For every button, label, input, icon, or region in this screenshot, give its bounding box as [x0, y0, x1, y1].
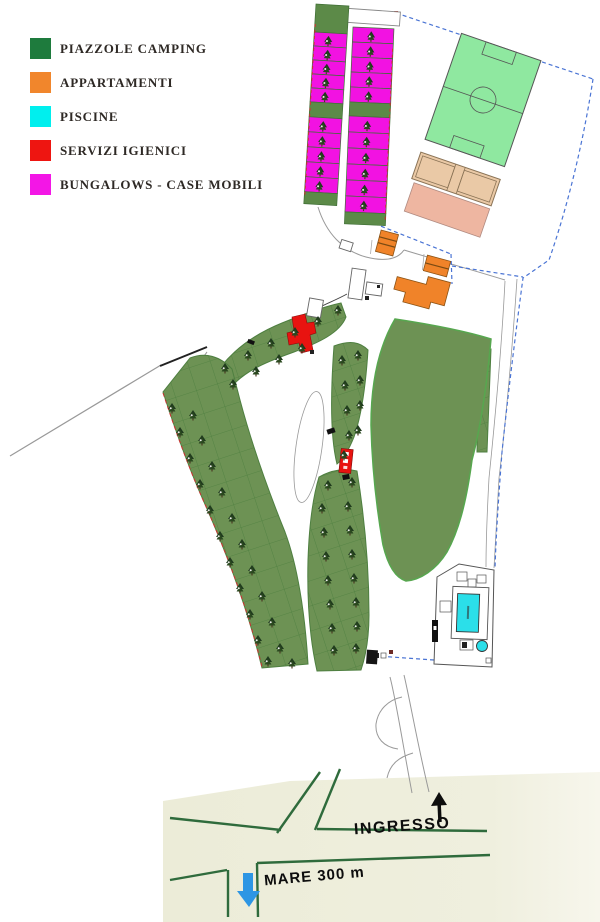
green-strip [349, 102, 391, 118]
legend-label: PISCINE [60, 109, 118, 125]
legend-item-servizi: SERVIZI IGIENICI [30, 140, 263, 161]
legend-item-bungalows: BUNGALOWS - CASE MOBILI [30, 174, 263, 195]
green-strip [309, 102, 343, 119]
green-strip [314, 4, 349, 34]
legend-label: SERVIZI IGIENICI [60, 143, 187, 159]
legend: PIAZZOLE CAMPING APPARTAMENTI PISCINE SE… [30, 38, 263, 195]
main-green-field [371, 319, 491, 581]
bungalow-strips [304, 4, 394, 226]
green-strip [304, 192, 338, 206]
apartment-buildings [375, 230, 450, 312]
legend-swatch-bungalows [30, 174, 51, 195]
camping-area-west [163, 355, 308, 668]
door-marker [377, 285, 380, 288]
legend-item-piazzole: PIAZZOLE CAMPING [30, 38, 263, 59]
legend-swatch-piscine [30, 106, 51, 127]
door-marker [365, 296, 369, 300]
service-buildings [307, 239, 383, 318]
round-pool [477, 641, 488, 652]
reception-building [348, 268, 366, 300]
bungalow-strip [304, 4, 349, 206]
legend-item-appartamenti: APPARTAMENTI [30, 72, 263, 93]
boundary-marker [389, 650, 393, 654]
legend-swatch-piazzole [30, 38, 51, 59]
pool-complex [432, 564, 494, 667]
legend-item-piscine: PISCINE [30, 106, 263, 127]
legend-label: PIAZZOLE CAMPING [60, 41, 207, 57]
small-structure [381, 653, 386, 658]
legend-swatch-servizi [30, 140, 51, 161]
apartment-building [375, 230, 398, 256]
soccer-field [425, 33, 541, 166]
green-strip [344, 212, 385, 226]
legend-label: BUNGALOWS - CASE MOBILI [60, 177, 263, 193]
apartment-building [423, 255, 450, 277]
camping-area-east [308, 470, 369, 671]
door-marker [310, 350, 314, 354]
outbuilding-bar [342, 8, 401, 26]
legend-label: APPARTAMENTI [60, 75, 173, 91]
camping-area-wedge [332, 343, 368, 464]
sanitary-building-small [339, 448, 353, 473]
campsite-map: PIAZZOLE CAMPING APPARTAMENTI PISCINE SE… [0, 0, 600, 922]
utility-building [366, 650, 378, 665]
bungalow-strip [344, 27, 394, 226]
legend-swatch-appartamenti [30, 72, 51, 93]
